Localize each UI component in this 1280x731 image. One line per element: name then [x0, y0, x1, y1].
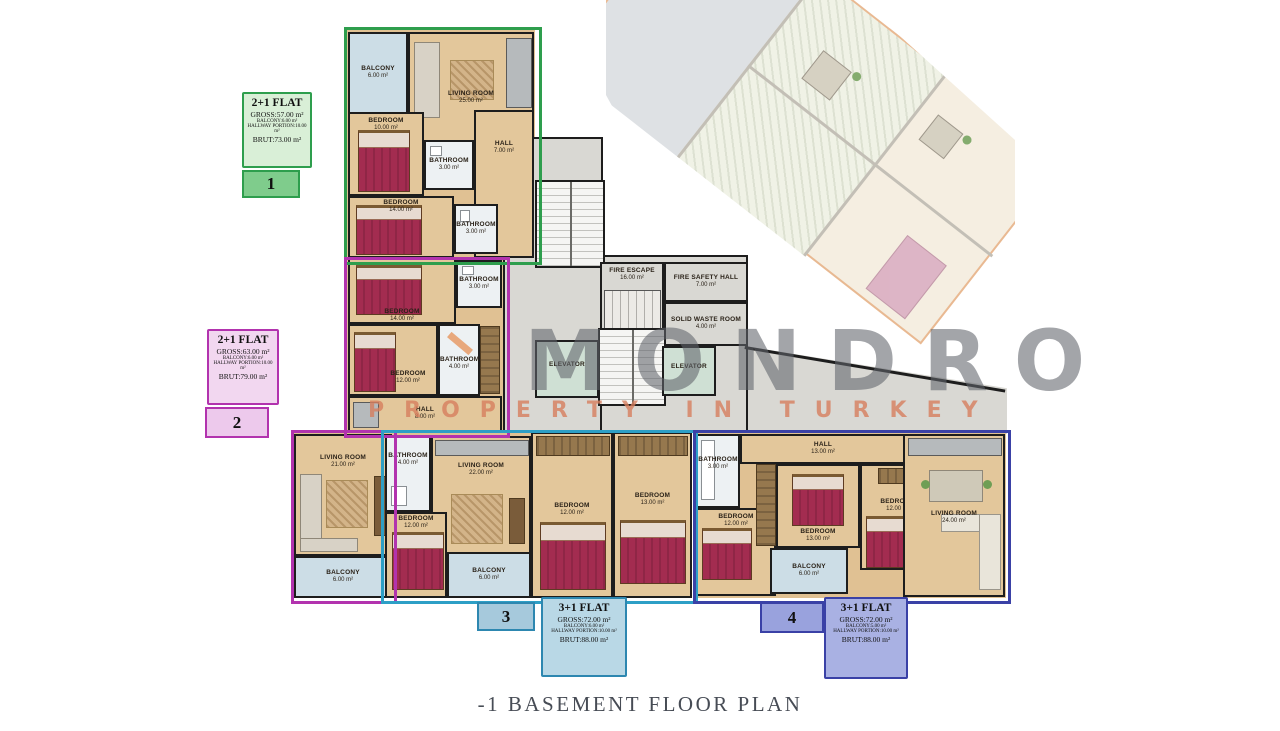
sofa	[414, 42, 440, 118]
kitchen-counter	[353, 402, 379, 428]
closet	[480, 326, 500, 394]
room-label: ELEVATOR	[537, 361, 597, 369]
toilet	[460, 210, 470, 222]
plant	[983, 480, 992, 489]
room-elevator-1: ELEVATOR	[535, 340, 599, 398]
room-label: BEDROOM12.00 m²	[533, 502, 611, 517]
ghost-plant	[961, 134, 974, 147]
bathtub	[701, 440, 715, 500]
flat3-gross: GROSS:72.00 m²	[545, 615, 623, 624]
dining-table	[929, 470, 983, 502]
room-fire-safety-hall: FIRE SAFETY HALL7.00 m²	[664, 262, 748, 302]
room-label: LIVING ROOM22.00 m²	[433, 462, 529, 477]
cabinet	[509, 498, 525, 544]
main-staircase	[535, 180, 605, 268]
room-label: LIVING ROOM21.00 m²	[296, 454, 390, 469]
sink	[462, 266, 474, 275]
room-flat4-balcony: BALCONY6.00 m²	[770, 548, 848, 594]
room-flat1-bedroom-1: BEDROOM10.00 m²	[348, 112, 424, 196]
stair-shaft	[598, 328, 666, 406]
room-elevator-2: ELEVATOR	[662, 346, 716, 396]
room-flat2-hall: HALL8.00 m²	[348, 396, 502, 432]
room-flat2-bedroom-1: BEDROOM14.00 m²	[348, 258, 456, 324]
room-flat4-hall: HALL13.00 m²	[740, 434, 906, 464]
flat1-brut: BRUT:73.00 m²	[246, 135, 308, 144]
flat4-legend: 3+1 FLAT GROSS:72.00 m² BALCONY:5.00 m² …	[824, 597, 908, 679]
room-flat3-bedroom-2: BEDROOM12.00 m²	[531, 432, 613, 598]
flat3-brut: BRUT:88.00 m²	[545, 635, 623, 644]
room-label: BATHROOM4.00 m²	[440, 356, 478, 371]
sofa	[300, 538, 358, 552]
bed	[354, 332, 396, 392]
floor-plan-canvas: BALCONY6.00 m² LIVING ROOM25.00 m² BEDRO…	[0, 0, 1280, 731]
flat3-hallway-area: HALLWAY PORTION:10.00 m²	[545, 629, 623, 634]
room-flat1-bathroom-2: BATHROOM3.00 m²	[454, 204, 498, 254]
room-label: BATHROOM4.00 m²	[387, 452, 429, 467]
room-flat3-bedroom-3: BEDROOM13.00 m²	[613, 432, 692, 598]
room-flat2-balcony: BALCONY6.00 m²	[294, 556, 392, 598]
room-flat1-bathroom-1: BATHROOM3.00 m²	[424, 140, 474, 190]
ghost-table	[919, 114, 964, 159]
rug	[451, 494, 503, 544]
flat4-number-badge: 4	[760, 602, 824, 633]
room-label: FIRE ESCAPE16.00 m²	[602, 267, 662, 282]
wardrobe	[536, 436, 610, 456]
bed	[792, 474, 844, 526]
bed	[356, 205, 422, 255]
room-label: BALCONY6.00 m²	[772, 563, 846, 578]
room-flat3-bedroom-1: BEDROOM12.00 m²	[385, 512, 447, 598]
room-label: BATHROOM3.00 m²	[426, 157, 472, 172]
flat2-hallway-area: HALLWAY PORTION:10.00 m²	[211, 361, 275, 371]
bed	[356, 265, 422, 315]
flat2-number-badge: 2	[205, 407, 269, 438]
plan-title: -1 BASEMENT FLOOR PLAN	[0, 692, 1280, 717]
sofa	[979, 514, 1001, 590]
flat4-hallway-area: HALLWAY PORTION:10.00 m²	[828, 629, 904, 634]
flat4-type: 3+1 FLAT	[828, 602, 904, 614]
towel	[447, 332, 473, 355]
room-flat2-bathroom-1: BATHROOM3.00 m²	[456, 260, 502, 308]
room-flat2-bathroom-2: BATHROOM4.00 m²	[438, 324, 480, 396]
room-solid-waste: SOLID WASTE ROOM4.00 m²	[664, 302, 748, 346]
sofa	[300, 474, 322, 544]
room-label: BEDROOM13.00 m²	[778, 528, 858, 543]
kitchen-counter	[908, 438, 1002, 456]
room-flat3-balcony: BALCONY6.00 m²	[447, 552, 531, 598]
room-label: BEDROOM13.00 m²	[615, 492, 690, 507]
flat1-type: 2+1 FLAT	[246, 97, 308, 109]
flat2-type: 2+1 FLAT	[211, 334, 275, 346]
flat3-type: 3+1 FLAT	[545, 602, 623, 614]
flat1-hallway-area: HALLWAY PORTION:10.00 m²	[246, 124, 308, 134]
room-label: BALCONY6.00 m²	[449, 567, 529, 582]
flat4-gross: GROSS:72.00 m²	[828, 615, 904, 624]
room-label: BATHROOM3.00 m²	[456, 221, 496, 236]
room-label: BALCONY6.00 m²	[350, 65, 406, 80]
flat2-gross: GROSS:63.00 m²	[211, 347, 275, 356]
plant	[921, 480, 930, 489]
flat1-legend: 2+1 FLAT GROSS:57.00 m² BALCONY:6.00 m² …	[242, 92, 312, 168]
room-flat1-balcony: BALCONY6.00 m²	[348, 32, 408, 114]
room-flat3-bathroom: BATHROOM4.00 m²	[385, 436, 431, 512]
rug	[450, 60, 494, 100]
room-label: HALL7.00 m²	[476, 140, 532, 155]
flat2-legend: 2+1 FLAT GROSS:63.00 m² BALCONY:6.00 m² …	[207, 329, 279, 405]
sink	[430, 146, 442, 156]
ghost-bed	[866, 235, 947, 319]
room-flat2-bedroom-2: BEDROOM12.00 m²	[348, 324, 438, 396]
wardrobe	[618, 436, 688, 456]
shower	[391, 486, 407, 506]
bed	[540, 522, 606, 590]
room-flat4-bedroom-2: BEDROOM13.00 m²	[776, 464, 860, 548]
room-flat4-living: LIVING ROOM24.00 m²	[903, 434, 1005, 597]
rug	[326, 480, 368, 528]
closet	[756, 464, 776, 546]
room-flat2-living: LIVING ROOM21.00 m²	[294, 434, 392, 556]
kitchen-counter	[435, 440, 529, 456]
room-label: BALCONY6.00 m²	[296, 569, 390, 584]
room-label: FIRE SAFETY HALL7.00 m²	[666, 274, 746, 289]
room-label: HALL13.00 m²	[742, 441, 904, 456]
room-label: ELEVATOR	[664, 363, 714, 371]
flat4-brut: BRUT:88.00 m²	[828, 635, 904, 644]
room-label: SOLID WASTE ROOM4.00 m²	[666, 316, 746, 331]
bed	[702, 528, 752, 580]
kitchen-counter	[506, 38, 532, 108]
flat3-number-badge: 3	[477, 602, 535, 631]
flat3-legend: 3+1 FLAT GROSS:72.00 m² BALCONY:6.00 m² …	[541, 597, 627, 677]
bed	[620, 520, 686, 584]
room-flat1-bedroom-2: BEDROOM14.00 m²	[348, 196, 454, 258]
flat2-brut: BRUT:79.00 m²	[211, 372, 275, 381]
bed	[358, 130, 410, 192]
room-label: BATHROOM3.00 m²	[458, 276, 500, 291]
flat1-gross: GROSS:57.00 m²	[246, 110, 308, 119]
room-flat4-bathroom: BATHROOM3.00 m²	[696, 434, 740, 508]
flat1-number-badge: 1	[242, 170, 300, 198]
bed	[392, 532, 444, 590]
room-label: BEDROOM12.00 m²	[387, 515, 445, 530]
